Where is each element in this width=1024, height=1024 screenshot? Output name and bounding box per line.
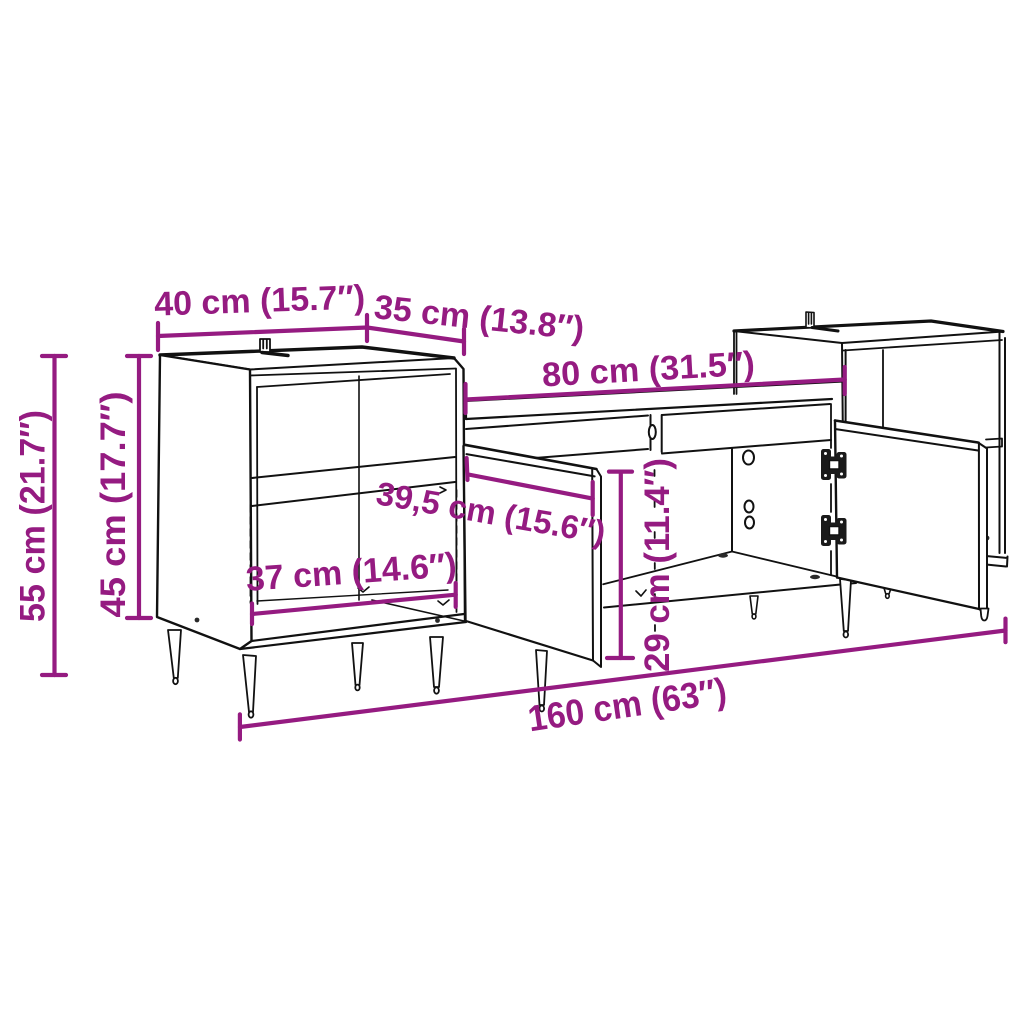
svg-text:29 cm (11.4″): 29 cm (11.4″) (637, 458, 677, 672)
svg-text:55 cm (21.7″): 55 cm (21.7″) (13, 410, 53, 622)
svg-text:160 cm (63″): 160 cm (63″) (525, 670, 729, 739)
svg-text:40 cm (15.7″): 40 cm (15.7″) (154, 278, 366, 323)
svg-text:45 cm (17.7″): 45 cm (17.7″) (93, 392, 133, 618)
svg-text:35 cm (13.8″): 35 cm (13.8″) (372, 288, 586, 348)
